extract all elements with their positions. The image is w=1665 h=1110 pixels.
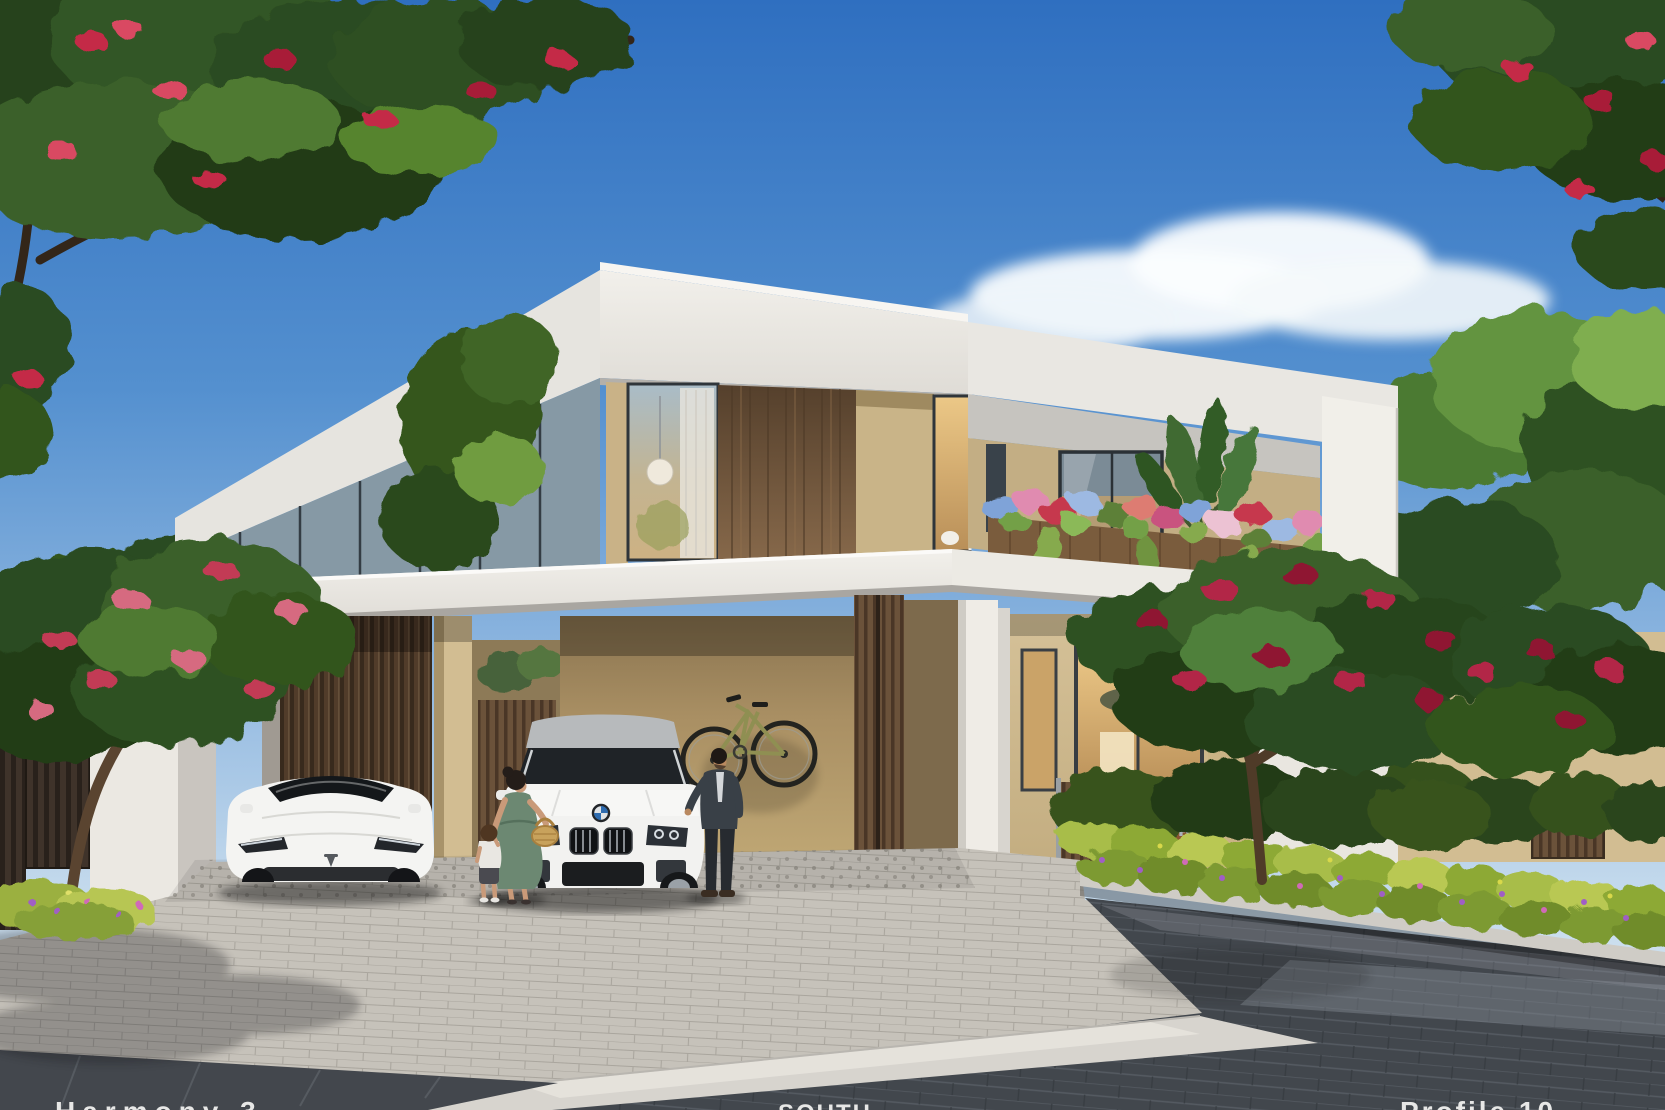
man-trousers [705,828,718,891]
canopy-columns [958,600,1010,862]
carport-pillar [434,616,472,862]
tesla-mirror-right [408,804,421,813]
bmw-grille-right [604,828,632,854]
louver-screens [854,595,958,867]
upper-beige-pier [856,390,934,555]
pendant-lamp [647,459,673,485]
bmw-roundel [593,805,609,821]
toddler-hair [481,825,498,842]
tesla-mirror-left [240,804,253,813]
corner-pier [606,382,628,565]
upper-front-block [600,262,970,565]
bmw-grille-left [570,828,598,854]
bmw-roof [526,715,680,749]
caption-left: Harmony 3 [55,1096,263,1110]
caption-center: SOUTH [778,1100,872,1110]
ground-window-sliver [1022,650,1056,790]
caption-right: Profile 10 [1400,1096,1556,1110]
man-hair [711,748,727,764]
upper-window-right [934,396,970,551]
bmw-windshield [514,748,692,790]
render-canvas: 43 [0,0,1665,1110]
tesla-car [218,776,442,906]
villa-render: 43 [0,0,1665,1110]
upper-window-left [628,384,718,560]
upper-wood-panel [718,385,856,560]
bmw-headlight-right [646,825,688,847]
